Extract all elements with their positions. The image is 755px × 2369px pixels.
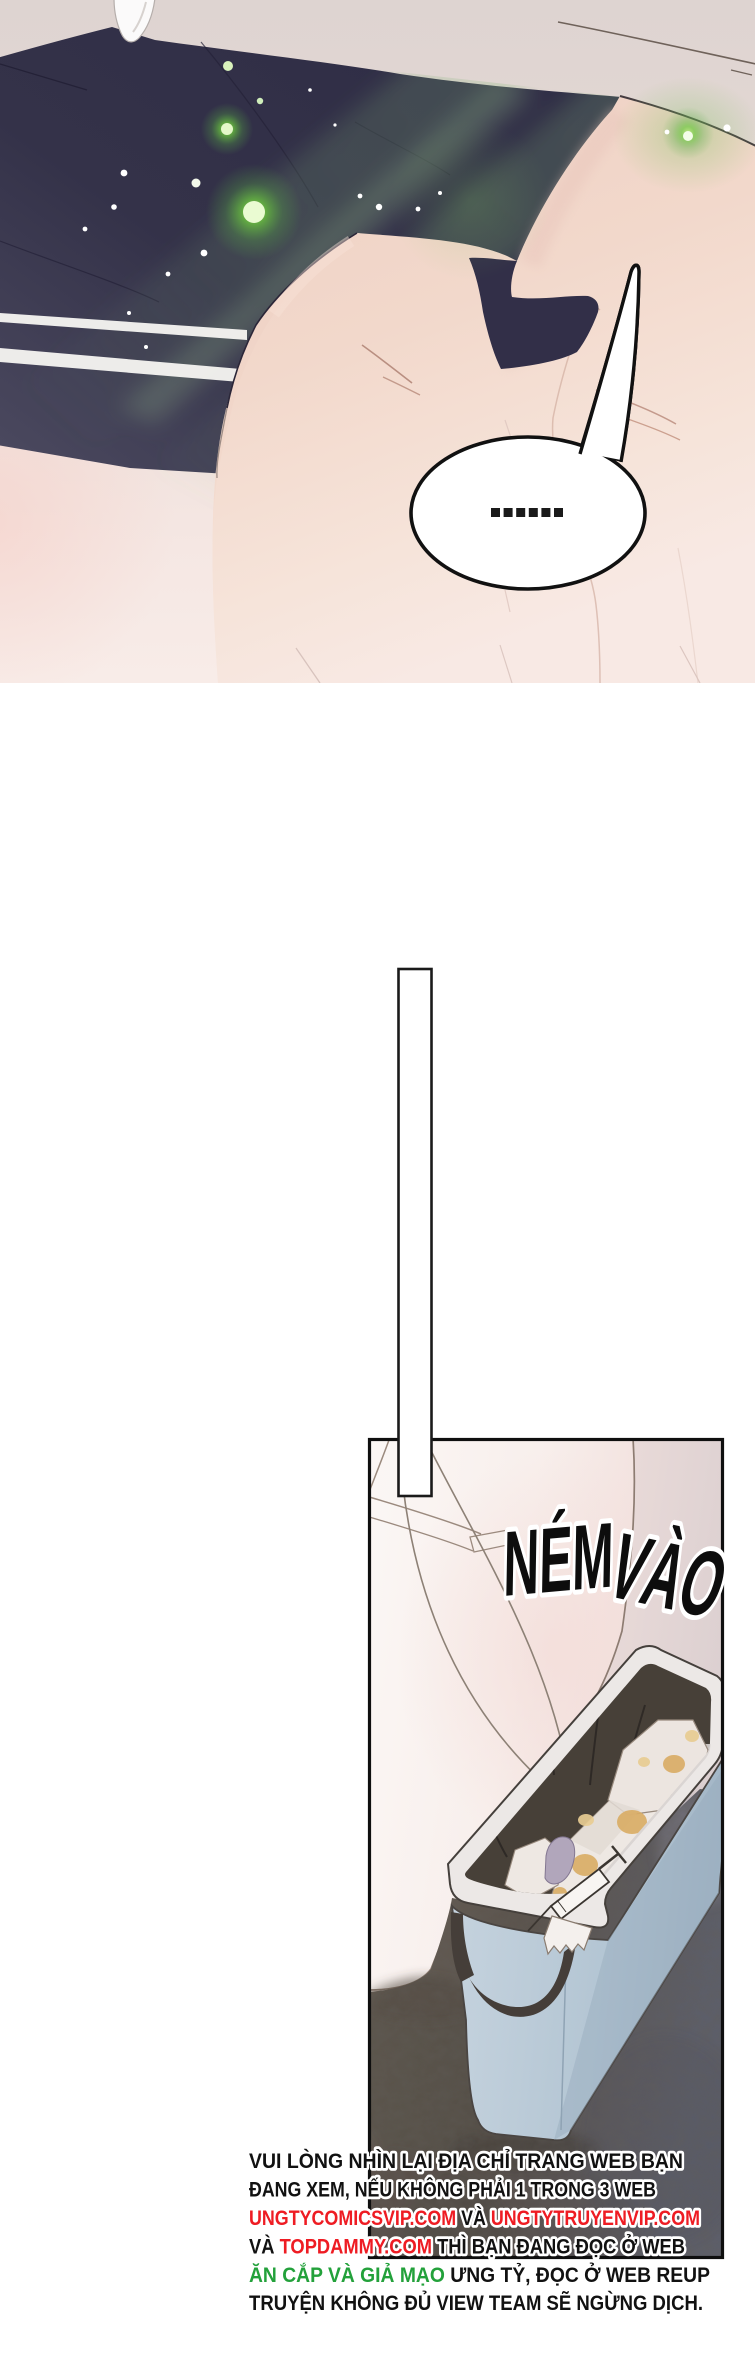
svg-text:NÉM: NÉM xyxy=(503,1503,615,1616)
svg-text:TRUYỆN KHÔNG ĐỦ VIEW TEAM SẼ N: TRUYỆN KHÔNG ĐỦ VIEW TEAM SẼ NGỪNG DỊCH. xyxy=(249,2290,703,2315)
svg-text:UNGTYCOMICSVIP.COM VÀ UNGTYTRU: UNGTYCOMICSVIP.COM VÀ UNGTYTRUYENVIP.COM xyxy=(249,2205,700,2230)
svg-text:ĂN CẮP VÀ GIẢ MẠO ƯNG TỶ, ĐỌC: ĂN CẮP VÀ GIẢ MẠO ƯNG TỶ, ĐỌC Ở WEB REUP xyxy=(249,2262,710,2287)
svg-text:VUI LÒNG NHÌN LẠI ĐỊA CHỈ TRAN: VUI LÒNG NHÌN LẠI ĐỊA CHỈ TRANG WEB BẠN xyxy=(249,2148,683,2173)
svg-text:ĐANG XEM, NẾU KHÔNG PHẢI 1 TRO: ĐANG XEM, NẾU KHÔNG PHẢI 1 TRONG 3 WEB xyxy=(249,2177,656,2202)
svg-text:VÀ TOPDAMMY.COM THÌ BẠN ĐANG Đ: VÀ TOPDAMMY.COM THÌ BẠN ĐANG ĐỌC Ở WEB xyxy=(249,2234,685,2259)
